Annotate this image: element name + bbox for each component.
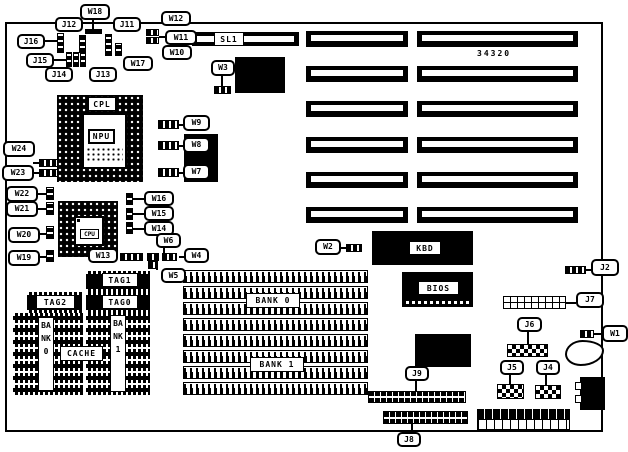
jumper-w19 — [46, 250, 54, 262]
connector-j5 — [497, 384, 524, 399]
label-cpl: CPL — [88, 97, 116, 111]
expansion-slot — [306, 101, 408, 117]
label-j11: J11 — [113, 17, 141, 32]
jumper-w9 — [158, 120, 179, 129]
simm-socket — [183, 334, 368, 347]
expansion-slot — [306, 137, 408, 153]
label-w19: W19 — [8, 250, 40, 266]
jumper-w20 — [46, 226, 54, 239]
label-w11: W11 — [165, 30, 197, 45]
label-tag0: TAG0 — [102, 295, 138, 309]
jumper-j12 — [57, 33, 64, 53]
jumper-w6 — [147, 253, 159, 261]
jumper-w10 — [146, 37, 159, 44]
label-j14: J14 — [45, 67, 73, 82]
simm-socket — [183, 318, 368, 331]
expansion-slot — [306, 66, 408, 82]
label-cpu: CPU — [80, 229, 99, 239]
connector-j7 — [503, 296, 566, 309]
expansion-slot — [306, 172, 408, 188]
jumper-w18 — [85, 29, 102, 34]
slot-sl1 — [192, 32, 299, 46]
label-w9: W9 — [183, 115, 210, 131]
label-tag2: TAG2 — [36, 295, 75, 309]
keyboard-connector-tab — [575, 395, 582, 403]
npu-pins — [86, 147, 123, 161]
jumper-w13 — [120, 253, 143, 261]
jumper-w1 — [580, 330, 594, 338]
label-w13: W13 — [88, 248, 118, 263]
label-w22: W22 — [6, 186, 38, 202]
expansion-slot — [417, 172, 578, 188]
label-w6: W6 — [156, 233, 181, 248]
pointer-w22 — [38, 193, 46, 195]
label-sl1: SL1 — [214, 32, 244, 46]
jumper-w17 — [115, 43, 122, 56]
pointer-w5 — [156, 266, 158, 270]
chip-qfp — [415, 334, 471, 367]
label-bank0-simm: BANK 0 — [246, 293, 300, 308]
label-j2: J2 — [591, 259, 619, 276]
simm-socket — [183, 270, 368, 283]
keyboard-connector-tab — [575, 382, 582, 390]
jumper-j11 — [105, 34, 112, 56]
label-bios: BIOS — [418, 281, 459, 295]
jumper-w23 — [39, 169, 58, 177]
label-j6: J6 — [517, 317, 542, 332]
pointer-w18 — [92, 20, 94, 29]
jumper-w21 — [46, 202, 54, 215]
jumper-w14 — [126, 222, 133, 234]
pointer-j6 — [527, 332, 529, 344]
label-w16: W16 — [144, 191, 174, 206]
label-j7: J7 — [576, 292, 604, 308]
label-w20: W20 — [8, 227, 40, 243]
label-j13: J13 — [89, 67, 117, 82]
label-tag1: TAG1 — [102, 273, 138, 287]
label-j8: J8 — [397, 432, 421, 447]
jumper-w12 — [146, 29, 159, 36]
pointer-j5 — [509, 375, 511, 384]
power-connector-pins — [477, 409, 570, 419]
chip-plcc — [235, 57, 285, 93]
jumper-w15 — [126, 208, 133, 220]
pointer-j16 — [45, 40, 57, 42]
jumper-j12b — [79, 35, 86, 53]
label-cache: CACHE — [60, 346, 103, 361]
label-w18: W18 — [80, 4, 110, 20]
pointer-w24 — [33, 162, 39, 164]
label-w4: W4 — [184, 248, 209, 263]
jumper-w4 — [162, 253, 177, 261]
connector-j8 — [383, 411, 468, 424]
label-w3: W3 — [211, 60, 235, 76]
keyboard-din-connector — [580, 377, 605, 410]
power-connector-body — [477, 419, 570, 430]
label-w1: W1 — [602, 325, 628, 342]
board-number: 34320 — [477, 49, 533, 59]
label-j15: J15 — [26, 53, 54, 68]
jumper-w7 — [158, 168, 179, 177]
bios-socket-pins — [406, 301, 470, 304]
label-bank1-simm: BANK 1 — [250, 357, 304, 372]
label-w5: W5 — [161, 268, 186, 283]
pointer-w6 — [163, 248, 165, 253]
label-w21: W21 — [6, 201, 38, 217]
jumper-w16 — [126, 193, 133, 205]
pointer-j9 — [415, 381, 417, 391]
pointer-w23 — [34, 172, 39, 174]
label-w24: W24 — [3, 141, 35, 157]
label-j4: J4 — [536, 360, 560, 375]
expansion-slot — [306, 31, 408, 47]
motherboard-diagram: SL1 34320 W18 J12 J11 J16 J15 J14 J13 W1… — [0, 0, 628, 452]
connector-j6 — [507, 344, 548, 357]
jumper-j2 — [565, 266, 586, 274]
connector-j4 — [535, 385, 561, 399]
expansion-slot — [417, 66, 578, 82]
label-w2: W2 — [315, 239, 341, 255]
pointer-j15 — [54, 59, 66, 61]
jumper-j13 — [80, 52, 86, 67]
pointer-w2 — [341, 247, 346, 249]
label-w7: W7 — [183, 164, 210, 180]
pointer-j7 — [566, 302, 576, 304]
jumper-w8 — [158, 141, 179, 150]
pointer-w21 — [38, 208, 46, 210]
pointer-w16 — [133, 198, 144, 200]
label-bank1-chips: BANK1 — [110, 315, 126, 392]
jumper-j14 — [73, 52, 79, 67]
pointer-w15 — [133, 213, 144, 215]
label-w12: W12 — [161, 11, 191, 26]
jumper-w2 — [346, 244, 362, 252]
label-j5: J5 — [500, 360, 524, 375]
label-w8: W8 — [183, 137, 210, 153]
pointer-w19 — [40, 256, 46, 258]
label-npu: NPU — [88, 129, 115, 144]
label-w10: W10 — [162, 45, 192, 60]
expansion-slot — [306, 207, 408, 223]
jumper-w22 — [46, 187, 54, 200]
label-j16: J16 — [17, 34, 45, 49]
pointer-w3 — [221, 76, 223, 86]
simm-socket — [183, 382, 368, 395]
label-j12: J12 — [55, 17, 83, 32]
label-w23: W23 — [2, 165, 34, 181]
expansion-slot — [417, 31, 578, 47]
connector-j9 — [368, 391, 466, 403]
label-w17: W17 — [123, 56, 153, 71]
label-bank0-chips: BANK0 — [38, 317, 54, 391]
cpu-pin1-mark — [77, 219, 80, 222]
expansion-slot — [417, 207, 578, 223]
jumper-j15 — [66, 52, 72, 67]
jumper-w3 — [214, 86, 231, 94]
jumper-w24 — [39, 159, 58, 167]
pointer-j4 — [545, 375, 547, 385]
label-w15: W15 — [144, 206, 174, 221]
label-kbd: KBD — [409, 241, 441, 255]
pointer-w20 — [40, 233, 46, 235]
expansion-slot — [417, 101, 578, 117]
pointer-w1 — [594, 333, 602, 335]
label-j9: J9 — [405, 366, 429, 381]
expansion-slot — [417, 137, 578, 153]
pointer-w14 — [133, 228, 144, 230]
